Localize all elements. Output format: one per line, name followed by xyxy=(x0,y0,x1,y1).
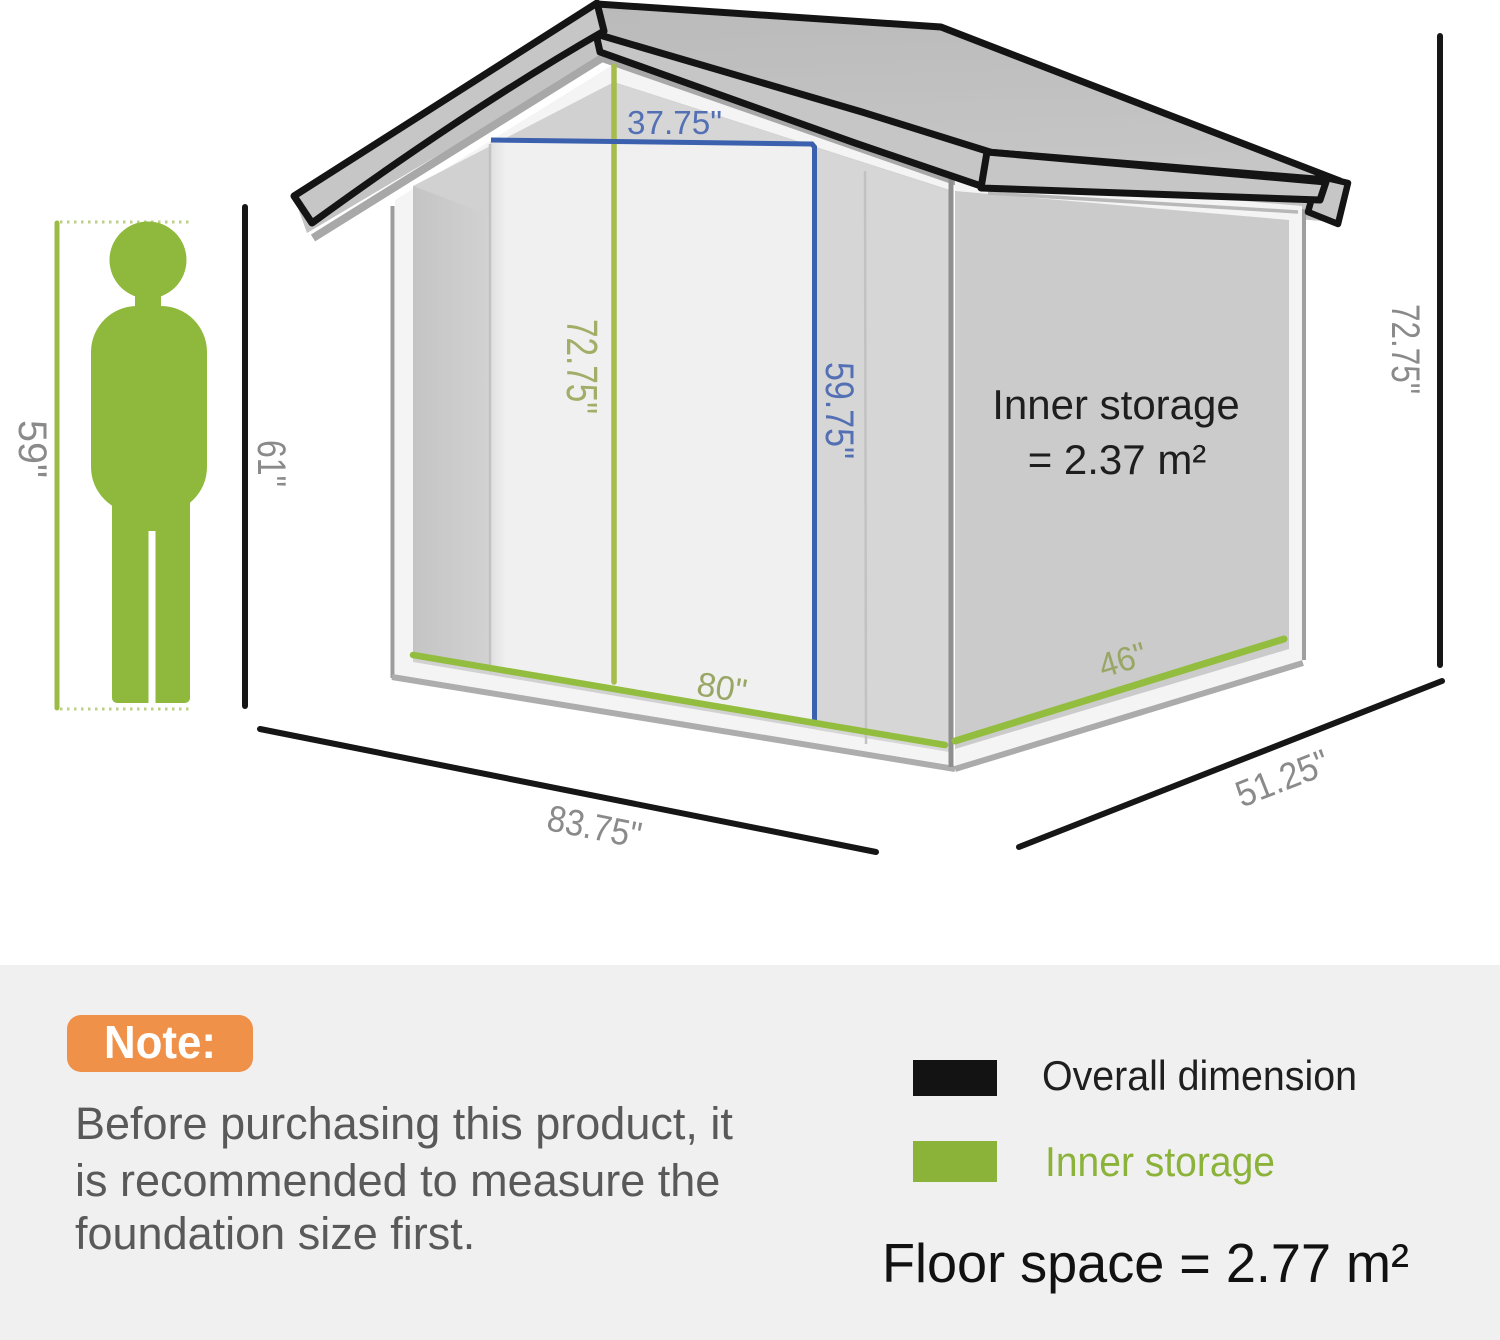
svg-text:72.75": 72.75" xyxy=(557,319,606,414)
svg-text:Before purchasing this product: Before purchasing this product, it xyxy=(75,1098,733,1149)
svg-text:Inner storage: Inner storage xyxy=(992,381,1240,428)
svg-text:foundation size first.: foundation size first. xyxy=(75,1208,475,1259)
svg-text:Note:: Note: xyxy=(104,1016,216,1068)
svg-text:80": 80" xyxy=(694,665,750,711)
svg-text:Overall dimension: Overall dimension xyxy=(1042,1052,1357,1099)
svg-text:= 2.37 m²: = 2.37 m² xyxy=(1028,436,1207,483)
svg-text:59": 59" xyxy=(10,420,54,478)
svg-text:61": 61" xyxy=(249,440,293,487)
svg-text:is recommended to measure the: is recommended to measure the xyxy=(75,1155,720,1206)
svg-text:Floor space = 2.77 m²: Floor space = 2.77 m² xyxy=(882,1232,1409,1294)
svg-text:Inner storage: Inner storage xyxy=(1045,1138,1275,1185)
svg-text:72.75": 72.75" xyxy=(1383,304,1427,394)
svg-text:37.75": 37.75" xyxy=(627,104,722,141)
svg-text:59.75": 59.75" xyxy=(817,362,861,459)
